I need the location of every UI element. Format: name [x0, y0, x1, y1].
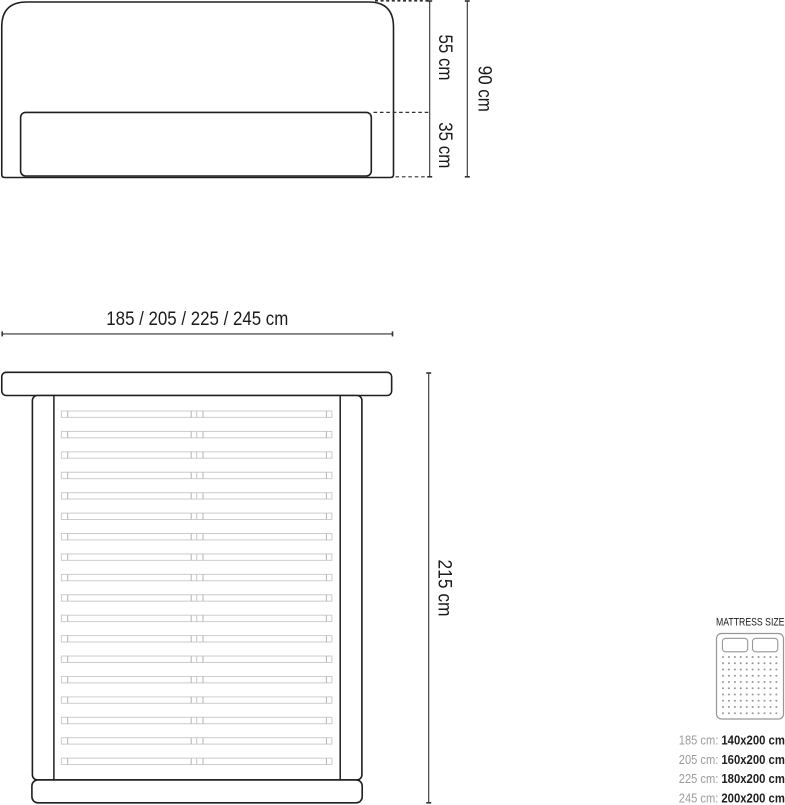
svg-text:215 cm: 215 cm: [433, 560, 454, 617]
svg-text:205 cm: 160x200 cm: 205 cm: 160x200 cm: [679, 753, 785, 767]
svg-text:185 / 205 / 225 / 245 cm: 185 / 205 / 225 / 245 cm: [106, 308, 288, 330]
svg-text:185 cm: 140x200 cm: 185 cm: 140x200 cm: [679, 733, 785, 747]
svg-text:225 cm: 180x200 cm: 225 cm: 180x200 cm: [679, 772, 785, 786]
svg-text:90 cm: 90 cm: [474, 66, 495, 112]
svg-text:55 cm: 55 cm: [434, 35, 455, 81]
svg-text:MATTRESS SIZE: MATTRESS SIZE: [716, 616, 785, 628]
svg-text:245 cm: 200x200 cm: 245 cm: 200x200 cm: [679, 792, 785, 805]
svg-text:35 cm: 35 cm: [434, 122, 455, 168]
